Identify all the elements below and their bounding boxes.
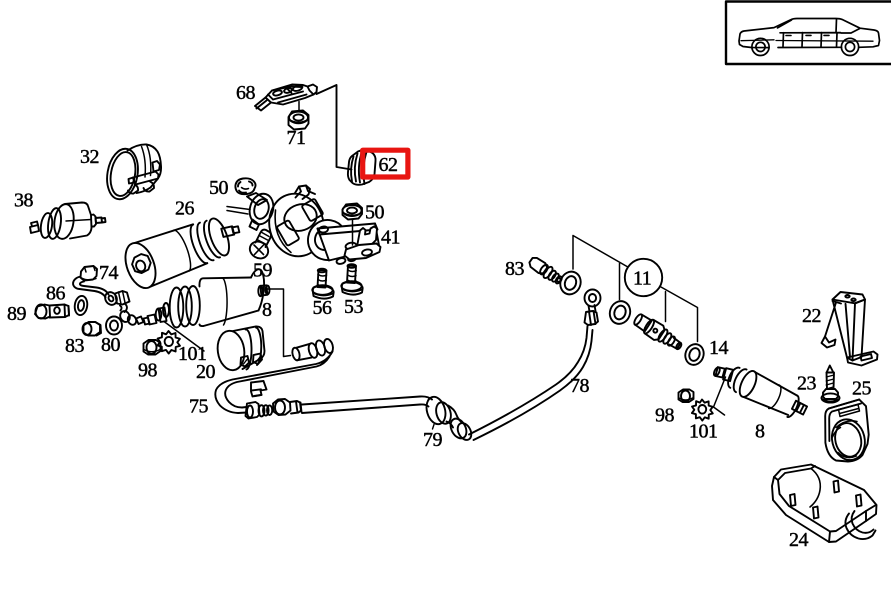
svg-text:8: 8 xyxy=(262,299,272,321)
svg-text:83: 83 xyxy=(65,335,85,357)
svg-text:74: 74 xyxy=(99,262,119,284)
svg-text:79: 79 xyxy=(423,429,443,451)
svg-text:14: 14 xyxy=(709,337,729,359)
svg-text:11: 11 xyxy=(633,268,651,290)
svg-text:56: 56 xyxy=(313,297,333,319)
svg-text:98: 98 xyxy=(138,360,158,382)
svg-text:23: 23 xyxy=(797,373,817,395)
svg-text:62: 62 xyxy=(379,154,398,176)
svg-text:53: 53 xyxy=(344,296,364,318)
svg-text:50: 50 xyxy=(209,177,229,199)
svg-text:24: 24 xyxy=(789,529,809,551)
svg-text:38: 38 xyxy=(14,190,34,212)
svg-text:68: 68 xyxy=(236,82,256,104)
svg-text:32: 32 xyxy=(80,146,99,168)
svg-text:8: 8 xyxy=(755,421,765,443)
svg-text:86: 86 xyxy=(46,283,66,305)
svg-text:20: 20 xyxy=(196,361,216,383)
svg-text:25: 25 xyxy=(852,378,872,400)
svg-text:75: 75 xyxy=(189,396,209,418)
svg-text:80: 80 xyxy=(101,334,121,356)
svg-text:78: 78 xyxy=(570,375,590,397)
svg-text:89: 89 xyxy=(7,303,27,325)
svg-text:71: 71 xyxy=(287,127,306,149)
svg-text:98: 98 xyxy=(655,405,675,427)
svg-text:41: 41 xyxy=(381,227,400,249)
svg-text:26: 26 xyxy=(175,198,195,220)
svg-text:50: 50 xyxy=(365,202,385,224)
svg-text:22: 22 xyxy=(802,305,821,327)
svg-text:83: 83 xyxy=(505,258,525,280)
svg-text:101: 101 xyxy=(689,421,718,443)
